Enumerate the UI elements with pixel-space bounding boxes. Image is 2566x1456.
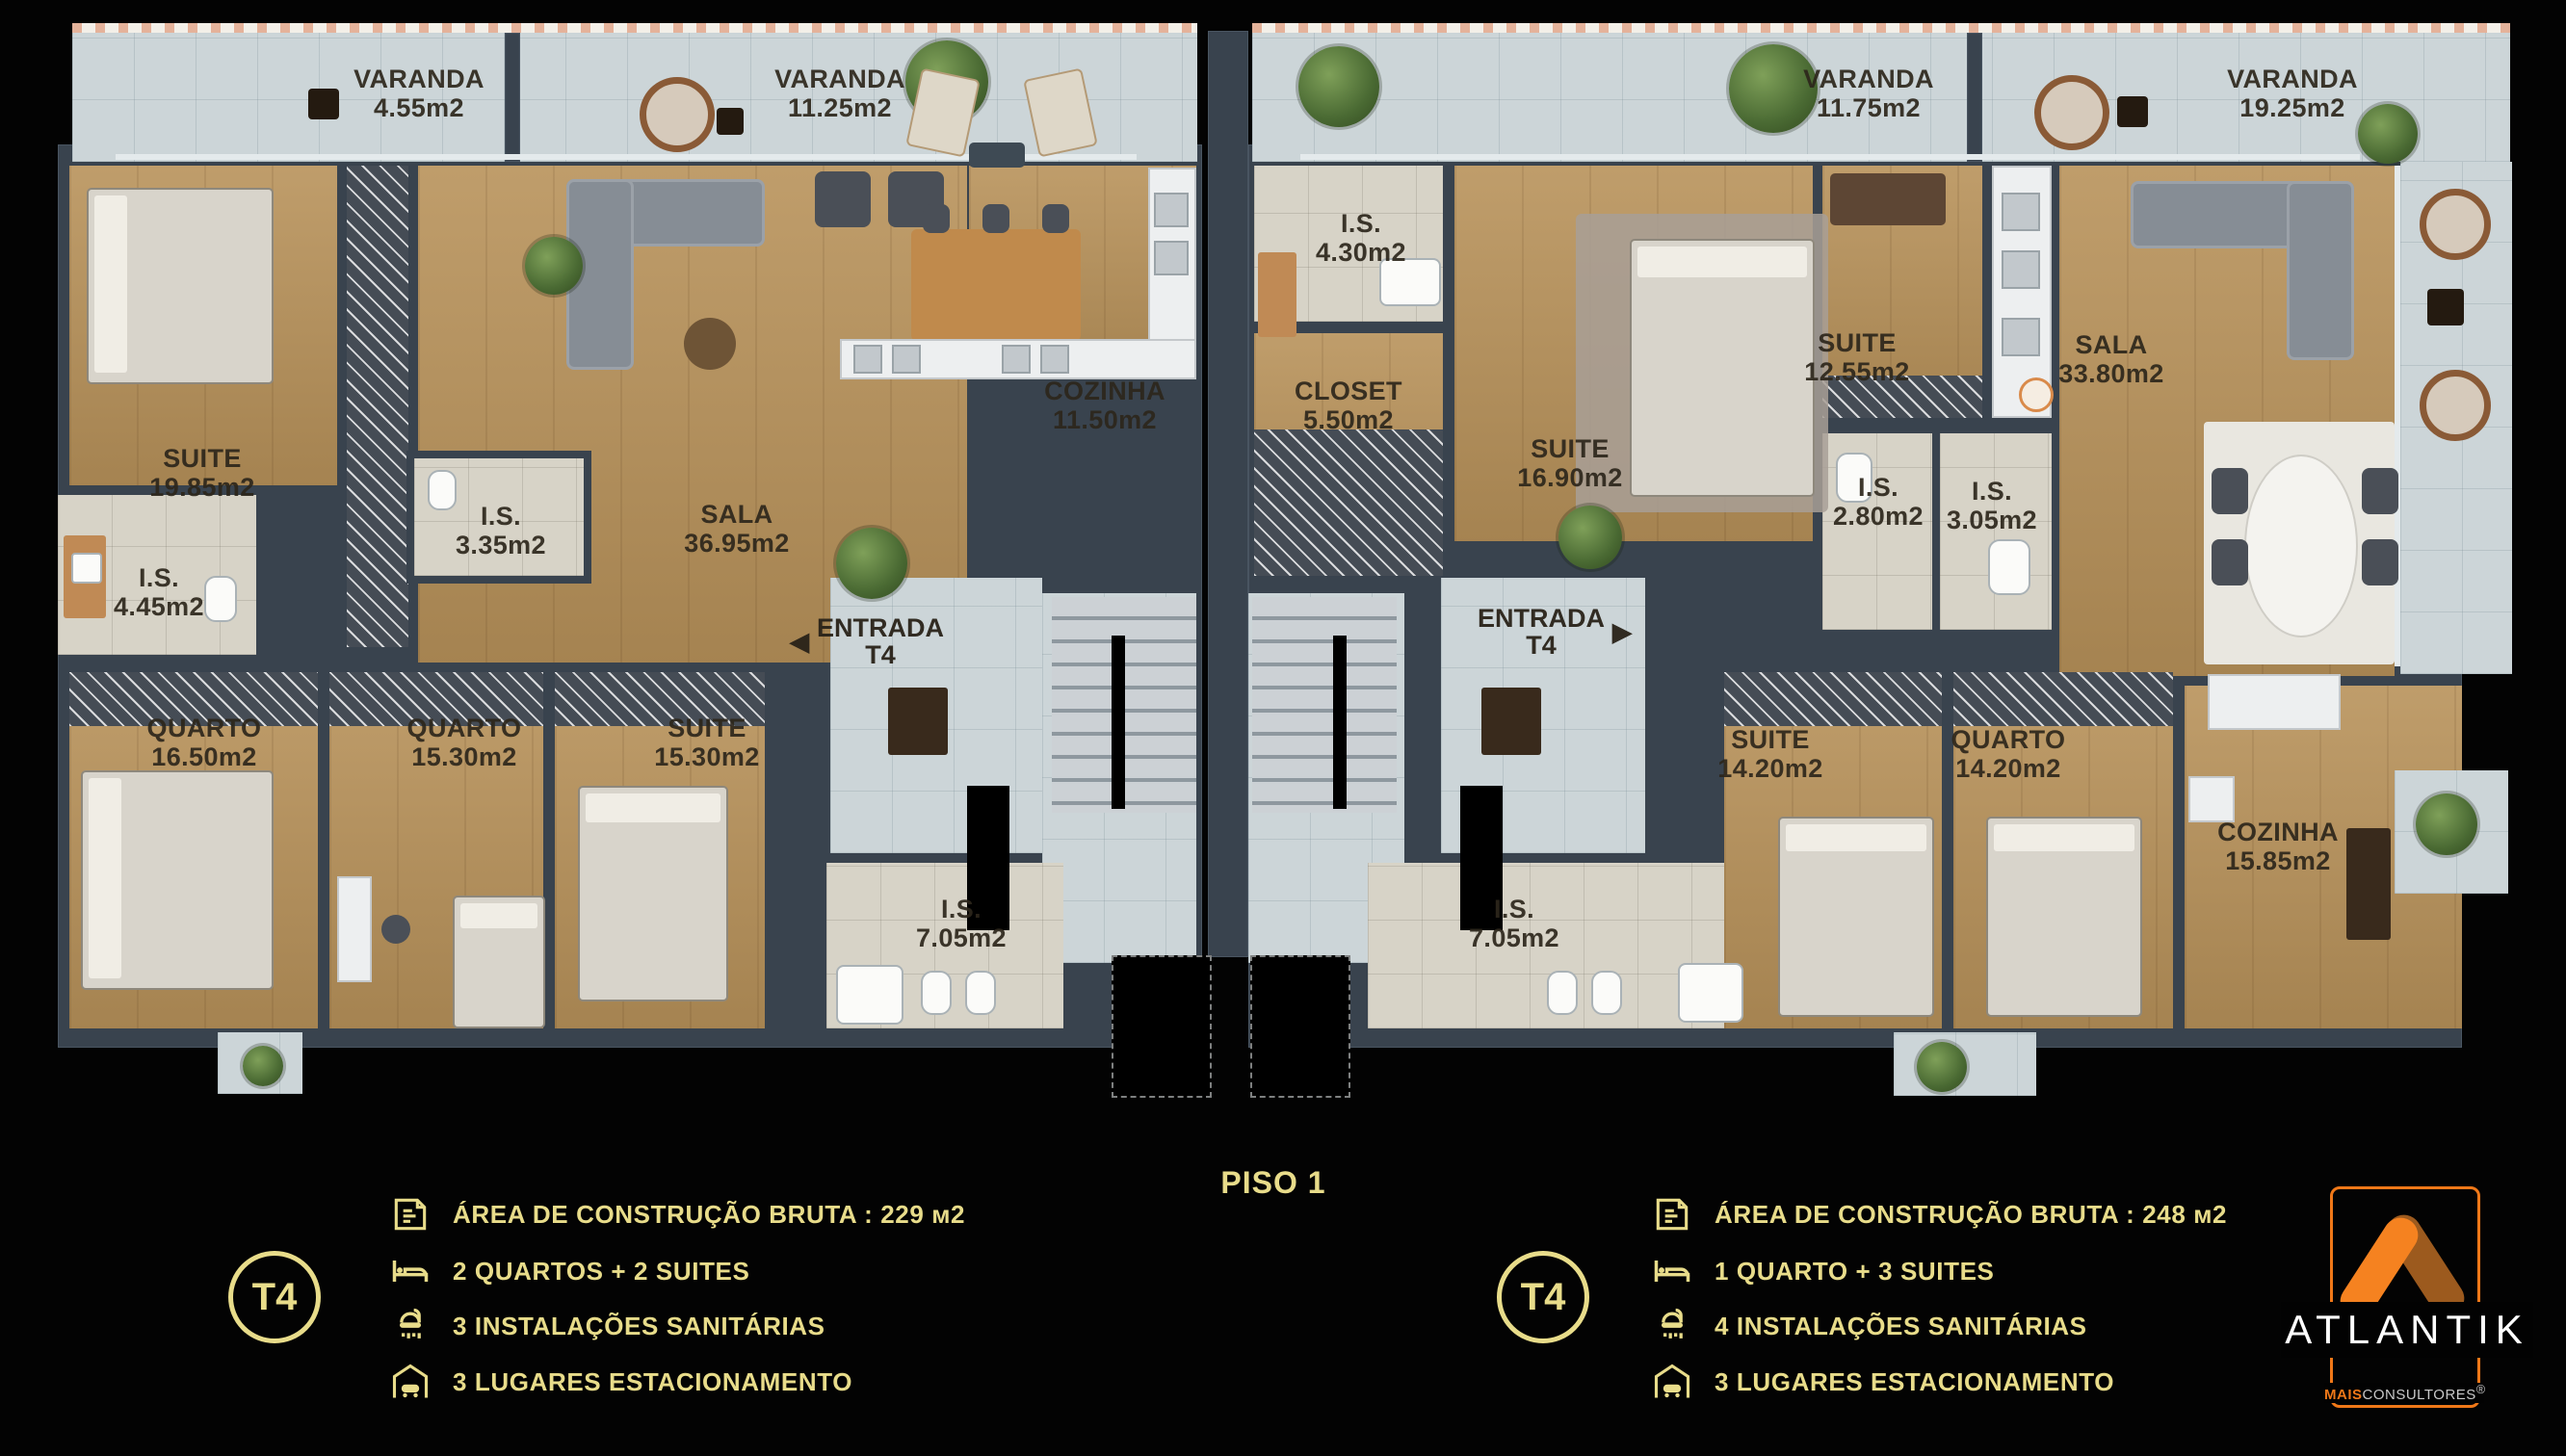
room-label: SUITE15.30m2 <box>601 715 813 771</box>
coffee-table <box>684 318 736 370</box>
chair <box>2212 539 2248 585</box>
appliance <box>1154 193 1189 227</box>
toilet <box>1591 971 1622 1015</box>
brand-sub-bold: MAIS <box>2324 1387 2363 1403</box>
entrada-label-left: ◀ ENTRADAT4 <box>790 614 944 669</box>
appliance <box>2002 250 2040 289</box>
registered-mark: ® <box>2476 1383 2486 1396</box>
legend-row: 3 LUGARES ESTACIONAMENTO <box>389 1358 852 1406</box>
room-label: CLOSET5.50m2 <box>1243 377 1454 434</box>
room-label: SUITE14.20m2 <box>1664 726 1876 783</box>
bed <box>81 770 274 990</box>
plant <box>1298 46 1379 127</box>
hob <box>853 345 882 374</box>
bed-icon <box>1651 1250 1693 1292</box>
bed <box>1778 817 1934 1017</box>
fridge <box>2188 776 2235 822</box>
room-label: SALA36.95m2 <box>631 501 843 558</box>
entry-arrow-icon: ▶ <box>1612 619 1632 645</box>
legend-label: 1 QUARTO + 3 SUITES <box>1715 1257 1995 1287</box>
kitchen-island <box>2208 674 2341 730</box>
room-label: SUITE16.90m2 <box>1464 435 1676 492</box>
floor-plan-icon <box>1651 1193 1693 1235</box>
bed <box>1986 817 2142 1017</box>
planter <box>243 1046 283 1086</box>
hob <box>892 345 921 374</box>
entrada-label-right: ENTRADAT4 ▶ <box>1478 605 1632 660</box>
legend-row: 2 QUARTOS + 2 SUITES <box>389 1247 749 1295</box>
legend-row: 4 INSTALAÇÕES SANITÁRIAS <box>1651 1302 2087 1350</box>
chair <box>982 204 1009 233</box>
legend-label: 2 QUARTOS + 2 SUITES <box>453 1257 749 1287</box>
legend-label: ÁREA DE CONSTRUÇÃO BRUTA : 248 м2 <box>1715 1200 2227 1230</box>
garage-icon <box>389 1361 432 1403</box>
balcony-railing <box>72 23 1197 33</box>
round-chair <box>640 77 715 152</box>
single-bed <box>453 896 545 1028</box>
room-label: QUARTO15.30m2 <box>358 715 570 771</box>
sink <box>1002 345 1031 374</box>
legend-label: 3 LUGARES ESTACIONAMENTO <box>453 1367 852 1397</box>
appliance <box>1154 241 1189 275</box>
balcony-railing <box>1252 23 2510 33</box>
unit-badge-left: T4 <box>228 1251 321 1343</box>
toilet <box>1547 971 1578 1015</box>
floor-title: PISO 1 <box>1177 1165 1370 1201</box>
tv-unit <box>969 143 1025 168</box>
wardrobe-corridor <box>347 166 408 647</box>
varanda-label: VARANDA4.55m2 <box>303 65 535 122</box>
room-label: COZINHA11.50m2 <box>999 377 1211 434</box>
legend-label: 4 INSTALAÇÕES SANITÁRIAS <box>1715 1312 2087 1341</box>
legend-label: 3 LUGARES ESTACIONAMENTO <box>1715 1367 2114 1397</box>
chair <box>923 204 950 233</box>
sink <box>1040 345 1069 374</box>
legend-label: ÁREA DE CONSTRUÇÃO BRUTA : 229 м2 <box>453 1200 965 1230</box>
armchair <box>815 171 871 227</box>
room-label: I.S.7.05m2 <box>1408 896 1620 952</box>
bed <box>578 786 728 1001</box>
entry-arrow-icon: ◀ <box>790 629 809 655</box>
side-table <box>2117 96 2148 127</box>
brand-name: ATLANTIK <box>2281 1302 2533 1358</box>
stair-railing <box>1333 636 1347 809</box>
floorplan-canvas: VARANDA4.55m2 VARANDA11.25m2 VARANDA11.7… <box>0 0 2566 1456</box>
void-left <box>1112 955 1212 1098</box>
varanda-label: VARANDA11.25m2 <box>724 65 956 122</box>
toilet <box>921 971 952 1015</box>
chair <box>2212 468 2248 514</box>
room-label: SUITE12.55m2 <box>1751 329 1963 386</box>
legend-row: 3 LUGARES ESTACIONAMENTO <box>1651 1358 2114 1406</box>
center-divider-wall <box>1208 31 1248 957</box>
room-label: I.S.4.45m2 <box>53 564 265 621</box>
room-label: I.S.3.35m2 <box>409 503 592 559</box>
varanda-label: VARANDA19.25m2 <box>2177 65 2408 122</box>
brand-sub-rest: CONSULTORES <box>2363 1387 2476 1403</box>
shower-icon <box>389 1305 432 1347</box>
room-label: QUARTO16.50m2 <box>98 715 310 771</box>
chair <box>2362 468 2398 514</box>
entry-cabinet <box>1481 688 1541 755</box>
bathtub <box>1678 963 1743 1023</box>
round-chair <box>2420 370 2491 441</box>
dining-table <box>911 229 1081 341</box>
wardrobe-strip <box>1953 672 2173 726</box>
bed <box>87 188 274 384</box>
toilet <box>1988 539 2030 595</box>
floor-plan-icon <box>389 1193 432 1235</box>
shower-icon <box>1651 1305 1693 1347</box>
brand-subtitle: MAISCONSULTORES® <box>2324 1383 2484 1403</box>
room-label: QUARTO14.20m2 <box>1902 726 2114 783</box>
desk <box>337 876 372 982</box>
room-label: I.S.3.05m2 <box>1886 478 2098 534</box>
wardrobe-strip <box>1724 672 1942 726</box>
side-table <box>2427 289 2464 325</box>
room-label: I.S.7.05m2 <box>855 896 1067 952</box>
plant <box>525 237 583 295</box>
unit-badge-right: T4 <box>1497 1251 1589 1343</box>
legend-row: 1 QUARTO + 3 SUITES <box>1651 1247 1995 1295</box>
toilet <box>965 971 996 1015</box>
stair-railing <box>1112 636 1125 809</box>
window-line <box>1300 154 2360 160</box>
varanda-label: VARANDA11.75m2 <box>1753 65 1984 122</box>
room-label: COZINHA15.85m2 <box>2172 819 2384 875</box>
plant <box>1558 506 1622 569</box>
round-chair <box>2034 75 2109 150</box>
desk <box>1830 173 1946 225</box>
legend-row: ÁREA DE CONSTRUÇÃO BRUTA : 248 м2 <box>1651 1190 2227 1238</box>
sofa <box>2287 181 2354 360</box>
closet-wardrobe <box>1254 429 1443 576</box>
chair <box>381 915 410 944</box>
room-label: SALA33.80m2 <box>2005 331 2217 388</box>
plant <box>2416 793 2477 855</box>
legend-row: 3 INSTALAÇÕES SANITÁRIAS <box>389 1302 825 1350</box>
plant <box>836 528 907 599</box>
chair <box>1042 204 1069 233</box>
legend-label: 3 INSTALAÇÕES SANITÁRIAS <box>453 1312 825 1341</box>
planter <box>1917 1042 1967 1092</box>
dining-table <box>2244 455 2358 637</box>
stairs-right <box>1252 597 1397 813</box>
entry-cabinet <box>888 688 948 755</box>
room-label: SUITE19.85m2 <box>96 445 308 502</box>
chair <box>2362 539 2398 585</box>
legend-row: ÁREA DE CONSTRUÇÃO BRUTA : 229 м2 <box>389 1190 965 1238</box>
bathtub <box>836 965 903 1025</box>
bed-icon <box>389 1250 432 1292</box>
appliance <box>2002 193 2040 231</box>
garage-icon <box>1651 1361 1693 1403</box>
room-label: I.S.4.30m2 <box>1255 210 1467 267</box>
void-right <box>1250 955 1350 1098</box>
round-chair <box>2420 189 2491 260</box>
